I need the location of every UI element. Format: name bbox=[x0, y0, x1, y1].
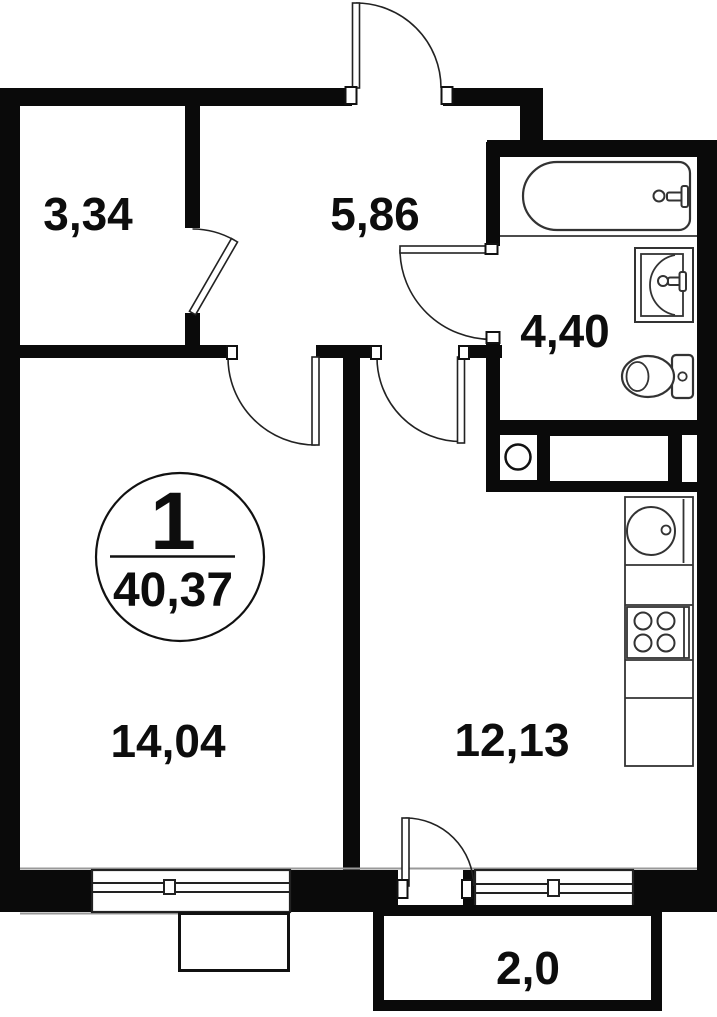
wall-storage-right-stub bbox=[185, 313, 200, 347]
room-label-bathroom: 4,40 bbox=[520, 305, 610, 357]
kitchen-door bbox=[371, 346, 469, 443]
wall-bathroom-left-upper bbox=[486, 142, 500, 246]
wall-left bbox=[0, 88, 20, 912]
door-swing-arc bbox=[377, 358, 461, 442]
living-room-door bbox=[227, 346, 319, 445]
washing-machine-icon bbox=[506, 445, 531, 470]
duct-niche bbox=[682, 435, 697, 482]
bathtub-tap-flange bbox=[682, 186, 689, 207]
wall-bathroom-top bbox=[487, 140, 717, 157]
wall-top-step bbox=[520, 106, 543, 142]
bathtub-icon bbox=[500, 162, 697, 236]
wash-basin-icon bbox=[635, 248, 693, 322]
floor-plan: 1 40,37 3,34 5,86 4,40 14,04 12,13 2,0 bbox=[0, 0, 717, 1017]
door-frame bbox=[486, 244, 498, 254]
room-label-balcony: 2,0 bbox=[496, 942, 560, 994]
door-swing-arc bbox=[228, 358, 316, 446]
door-frame bbox=[487, 332, 500, 343]
door-swing-arc bbox=[356, 3, 441, 88]
floor-plan-drawing: 1 40,37 3,34 5,86 4,40 14,04 12,13 2,0 bbox=[0, 0, 717, 1017]
stove-burner bbox=[635, 635, 652, 652]
toilet-bowl-inner bbox=[627, 362, 649, 391]
door-leaf bbox=[400, 246, 492, 253]
niches bbox=[500, 435, 697, 482]
basin-knob bbox=[658, 276, 668, 286]
door-leaf bbox=[353, 3, 360, 88]
wall-right bbox=[697, 157, 717, 912]
stove-icon bbox=[627, 607, 689, 658]
wall-hall-bottom-left bbox=[0, 345, 232, 358]
entrance-door bbox=[346, 3, 453, 104]
room-label-storage: 3,34 bbox=[43, 188, 133, 240]
stove-burner bbox=[658, 613, 675, 630]
window-living bbox=[92, 870, 290, 912]
storage-door bbox=[189, 229, 237, 315]
window-mullion bbox=[164, 880, 175, 894]
stove-burner bbox=[658, 635, 675, 652]
wall-storage-right-upper bbox=[185, 106, 200, 228]
closet-niche bbox=[550, 436, 668, 481]
basin-tap-flange bbox=[680, 272, 687, 291]
door-frame bbox=[398, 880, 408, 898]
room-label-kitchen: 12,13 bbox=[454, 714, 569, 766]
kitchen-counter bbox=[625, 497, 693, 766]
bathroom-door bbox=[400, 244, 500, 343]
flat-number: 1 bbox=[150, 476, 196, 567]
toilet-icon bbox=[622, 355, 693, 398]
flat-badge: 1 40,37 bbox=[96, 473, 264, 641]
door-leaf bbox=[189, 239, 237, 315]
bathtub-drain bbox=[654, 191, 665, 202]
door-leaf bbox=[402, 818, 409, 886]
balcony-door bbox=[398, 818, 474, 898]
wall-top-right bbox=[443, 88, 543, 106]
kitchen-sink-tap bbox=[662, 526, 671, 535]
total-area: 40,37 bbox=[113, 564, 233, 617]
wall-bottom-1 bbox=[20, 870, 92, 912]
window-ledge bbox=[180, 914, 289, 971]
door-frame bbox=[462, 880, 472, 898]
door-frame bbox=[442, 87, 453, 104]
wall-top-left bbox=[0, 88, 352, 106]
window-mullion bbox=[548, 880, 559, 896]
room-label-hallway: 5,86 bbox=[330, 188, 420, 240]
door-leaf bbox=[458, 357, 465, 443]
room-label-living: 14,04 bbox=[110, 715, 226, 767]
door-frame bbox=[227, 346, 237, 359]
door-swing-arc bbox=[400, 250, 492, 340]
door-leaf bbox=[312, 357, 319, 445]
kitchen-sink-icon bbox=[627, 507, 675, 555]
door-frame bbox=[346, 87, 357, 104]
wall-center bbox=[343, 345, 360, 872]
door-frame bbox=[459, 346, 469, 359]
toilet-button bbox=[678, 372, 686, 380]
door-swing-arc bbox=[193, 229, 235, 240]
door-frame bbox=[371, 346, 381, 359]
stove-burner bbox=[635, 613, 652, 630]
